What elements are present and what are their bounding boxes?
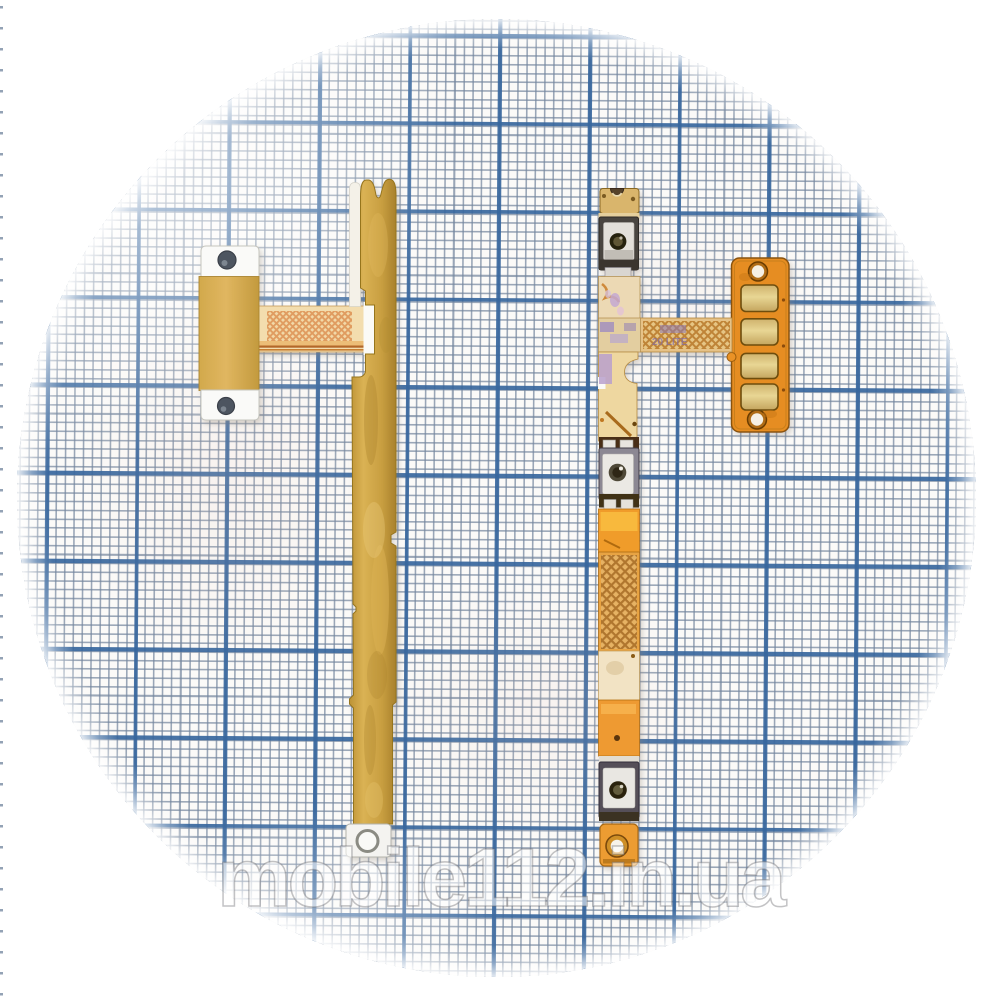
- svg-text:20 LITE: 20 LITE: [652, 337, 688, 348]
